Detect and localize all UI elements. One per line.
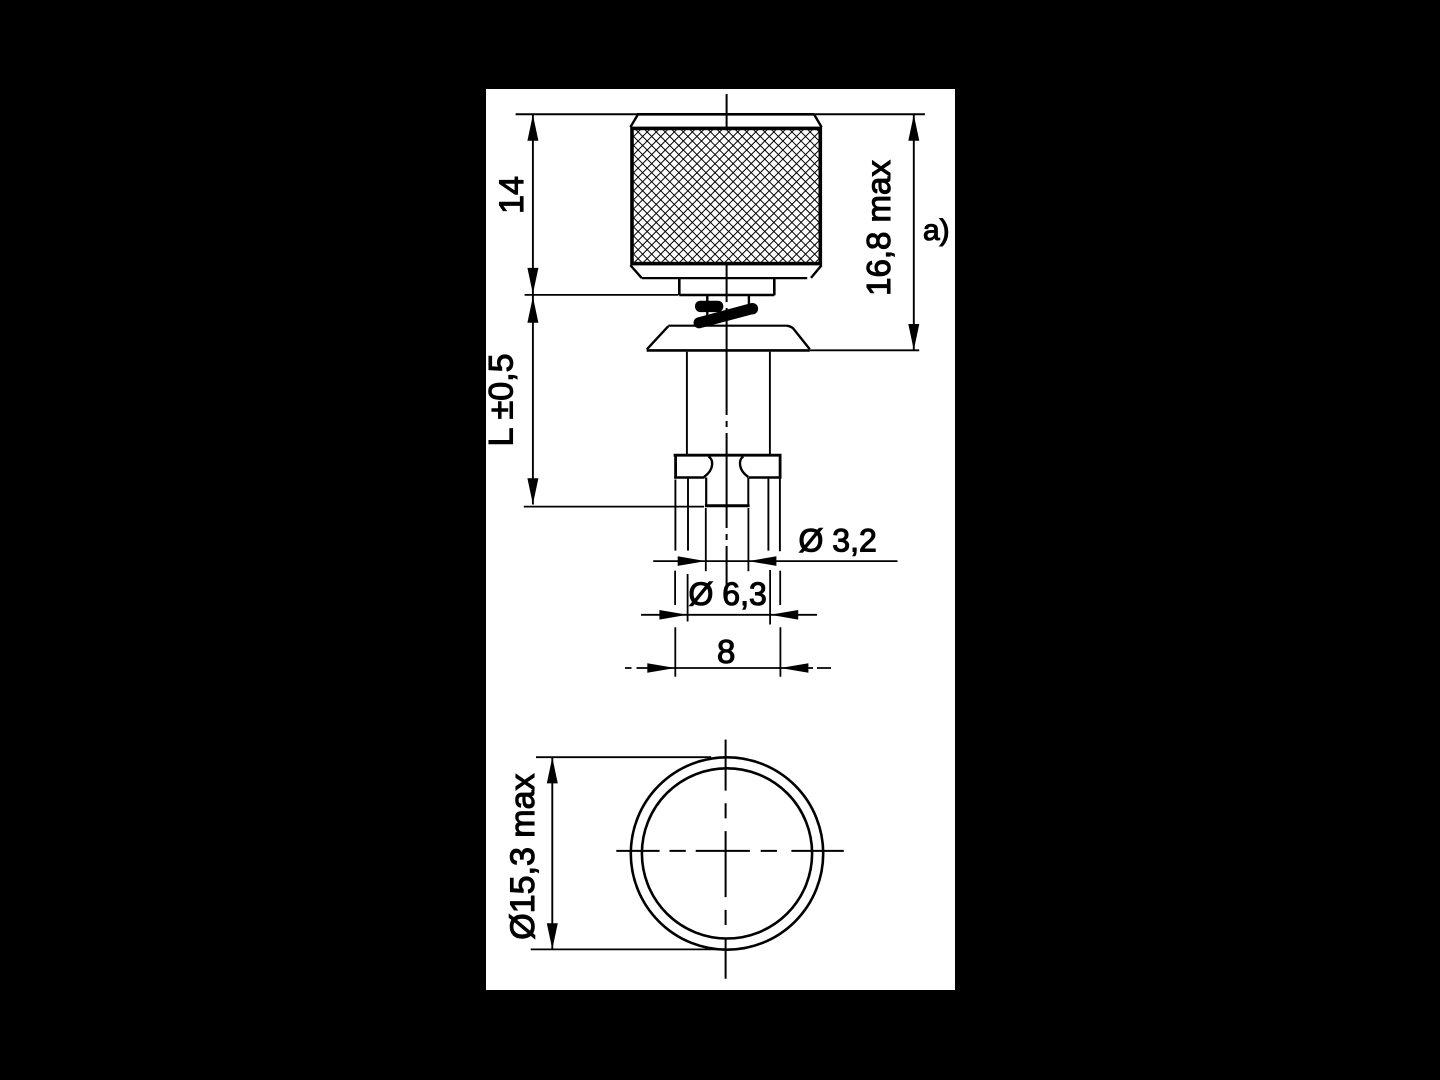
- svg-text:a): a): [923, 214, 950, 247]
- svg-text:Ø 3,2: Ø 3,2: [799, 523, 877, 559]
- svg-text:Ø 6,3: Ø 6,3: [689, 576, 767, 612]
- svg-text:L ±0,5: L ±0,5: [483, 353, 521, 446]
- svg-text:14: 14: [493, 176, 531, 214]
- svg-text:8: 8: [717, 633, 735, 670]
- svg-text:Ø15,3 max: Ø15,3 max: [504, 773, 542, 939]
- svg-text:16,8 max: 16,8 max: [860, 160, 897, 296]
